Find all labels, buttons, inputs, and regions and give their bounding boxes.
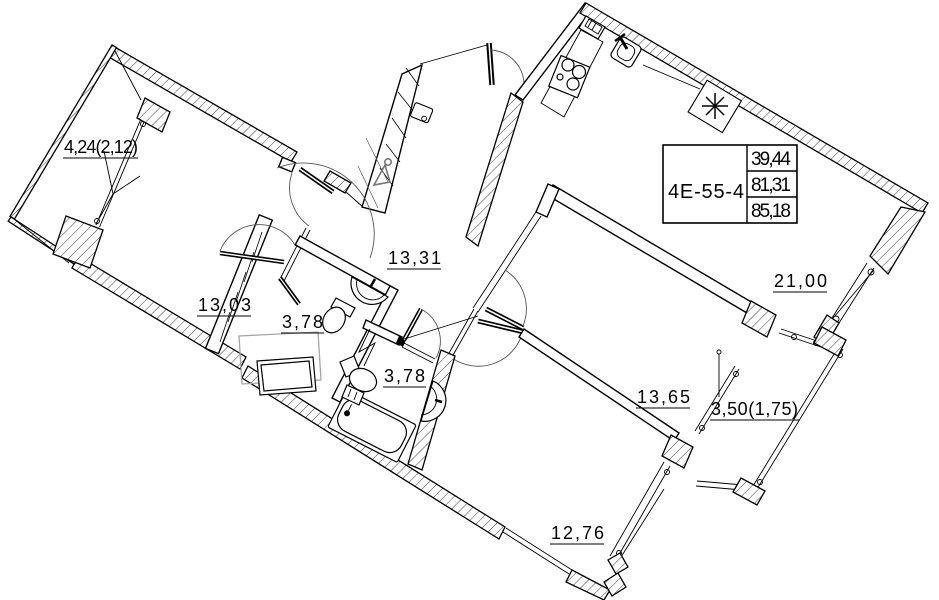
svg-text:3,78: 3,78 (282, 312, 323, 332)
svg-text:13,65: 13,65 (637, 387, 690, 407)
svg-text:13,03: 13,03 (198, 295, 251, 315)
svg-text:21,00: 21,00 (774, 271, 827, 291)
svg-text:81,31: 81,31 (751, 175, 791, 196)
svg-text:39,44: 39,44 (751, 149, 791, 170)
svg-text:4Е-55-4: 4Е-55-4 (668, 181, 744, 203)
svg-text:13,31: 13,31 (388, 248, 441, 268)
svg-text:12,76: 12,76 (551, 523, 604, 543)
svg-text:3,78: 3,78 (384, 366, 425, 386)
svg-text:85,18: 85,18 (751, 201, 791, 222)
svg-text:4,24(2,12): 4,24(2,12) (64, 137, 138, 157)
svg-text:3,50(1,75): 3,50(1,75) (711, 399, 798, 419)
